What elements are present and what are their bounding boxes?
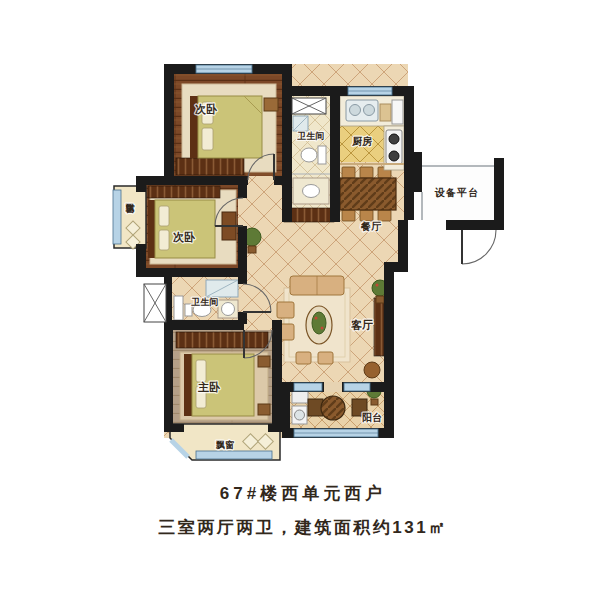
exterior-right-lower <box>394 268 414 438</box>
washer-door <box>295 410 305 420</box>
wardrobe <box>148 186 220 198</box>
wall-segment <box>282 64 292 222</box>
floorplan-image: 次卧 卫生间 厨房 设备平台 飘窗 次卧 餐厅 卫生间 客厅 主卧 飘窗 阳台 … <box>0 0 600 600</box>
balcony-door-window <box>344 383 370 391</box>
wall-segment <box>398 220 408 272</box>
wall-segment <box>164 64 174 185</box>
bed-headboard <box>184 354 192 416</box>
wall-segment <box>136 268 247 277</box>
bed-headboard <box>148 200 155 258</box>
wall-segment <box>238 185 247 198</box>
sink-bowl <box>364 105 375 116</box>
wall-segment <box>238 277 247 284</box>
stool <box>318 352 333 364</box>
entry-alcove <box>408 230 416 280</box>
nightstand <box>258 404 270 415</box>
chair <box>378 210 391 221</box>
balcony-door-window <box>294 383 322 391</box>
wall-segment <box>164 424 184 432</box>
balcony-door-gap <box>324 382 342 392</box>
wardrobe <box>176 158 244 175</box>
nightstand <box>264 98 278 111</box>
burner <box>389 151 399 161</box>
chair <box>342 167 355 178</box>
label-equipment-platform: 设备平台 <box>434 187 479 198</box>
label-dining-room: 餐厅 <box>360 221 382 232</box>
unit-description: 三室两厅两卫，建筑面积约131㎡ <box>158 518 447 537</box>
toilet <box>301 148 317 162</box>
bay-window-left-group <box>113 186 146 249</box>
wall-segment <box>494 158 504 230</box>
floorplan-page: 次卧 卫生间 厨房 设备平台 飘窗 次卧 餐厅 卫生间 客厅 主卧 飘窗 阳台 … <box>0 0 600 600</box>
entry-opening <box>408 220 446 230</box>
pillow <box>196 360 206 382</box>
nightstand <box>258 356 270 367</box>
label-bathroom-top: 卫生间 <box>297 131 325 141</box>
pillow <box>202 128 213 150</box>
wall-segment <box>274 176 292 185</box>
fridge <box>392 100 403 124</box>
dining-table <box>340 178 396 210</box>
wash-basin <box>222 303 235 316</box>
sink-bowl <box>350 105 361 116</box>
wall-segment <box>446 220 504 230</box>
wall-segment <box>330 86 340 222</box>
wall-segment <box>164 320 244 330</box>
tv-cabinet <box>374 298 384 356</box>
exterior-left-top <box>146 0 164 176</box>
flower <box>321 327 324 330</box>
wall-segment <box>404 86 414 220</box>
plant-pot <box>248 246 256 253</box>
bedroom-top-furniture <box>176 84 278 175</box>
label-balcony: 阳台 <box>362 412 382 423</box>
bay-window-glass <box>196 451 272 459</box>
bay-window-glass <box>113 190 121 244</box>
plant-pot <box>376 296 384 303</box>
dining-furniture <box>340 167 396 221</box>
pillow <box>159 206 169 226</box>
label-bathroom-middle: 卫生间 <box>191 297 219 307</box>
label-bedroom-top: 次卧 <box>195 103 218 115</box>
burner <box>389 134 399 144</box>
master-bedroom-furniture <box>176 332 270 420</box>
label-bay-window-bottom: 飘窗 <box>215 440 234 450</box>
label-bedroom-middle: 次卧 <box>173 231 196 243</box>
wall-segment <box>164 320 173 432</box>
wardrobe <box>176 332 268 348</box>
label-master-bedroom: 主卧 <box>198 381 221 393</box>
wall-segment <box>272 320 282 432</box>
wall-segment <box>384 262 394 438</box>
flower <box>376 284 379 287</box>
wall-segment <box>136 176 146 192</box>
pillow <box>159 230 169 250</box>
chair <box>342 210 355 221</box>
table-plant <box>312 312 326 334</box>
toilet-tank <box>318 146 326 164</box>
label-living-room: 客厅 <box>350 319 373 331</box>
label-kitchen: 厨房 <box>351 136 372 147</box>
wall-segment <box>136 176 248 185</box>
balcony-table <box>321 396 345 420</box>
cutting-board <box>380 104 391 121</box>
stool <box>296 352 311 364</box>
unit-title: 67#楼西单元西户 <box>220 483 386 503</box>
chair <box>360 167 373 178</box>
chair <box>360 210 373 221</box>
flower <box>315 317 318 320</box>
bath-cabinet <box>174 296 183 320</box>
plant-pot <box>371 399 378 405</box>
wash-basin <box>303 185 320 198</box>
armchair <box>277 302 294 318</box>
pouf <box>364 362 380 378</box>
